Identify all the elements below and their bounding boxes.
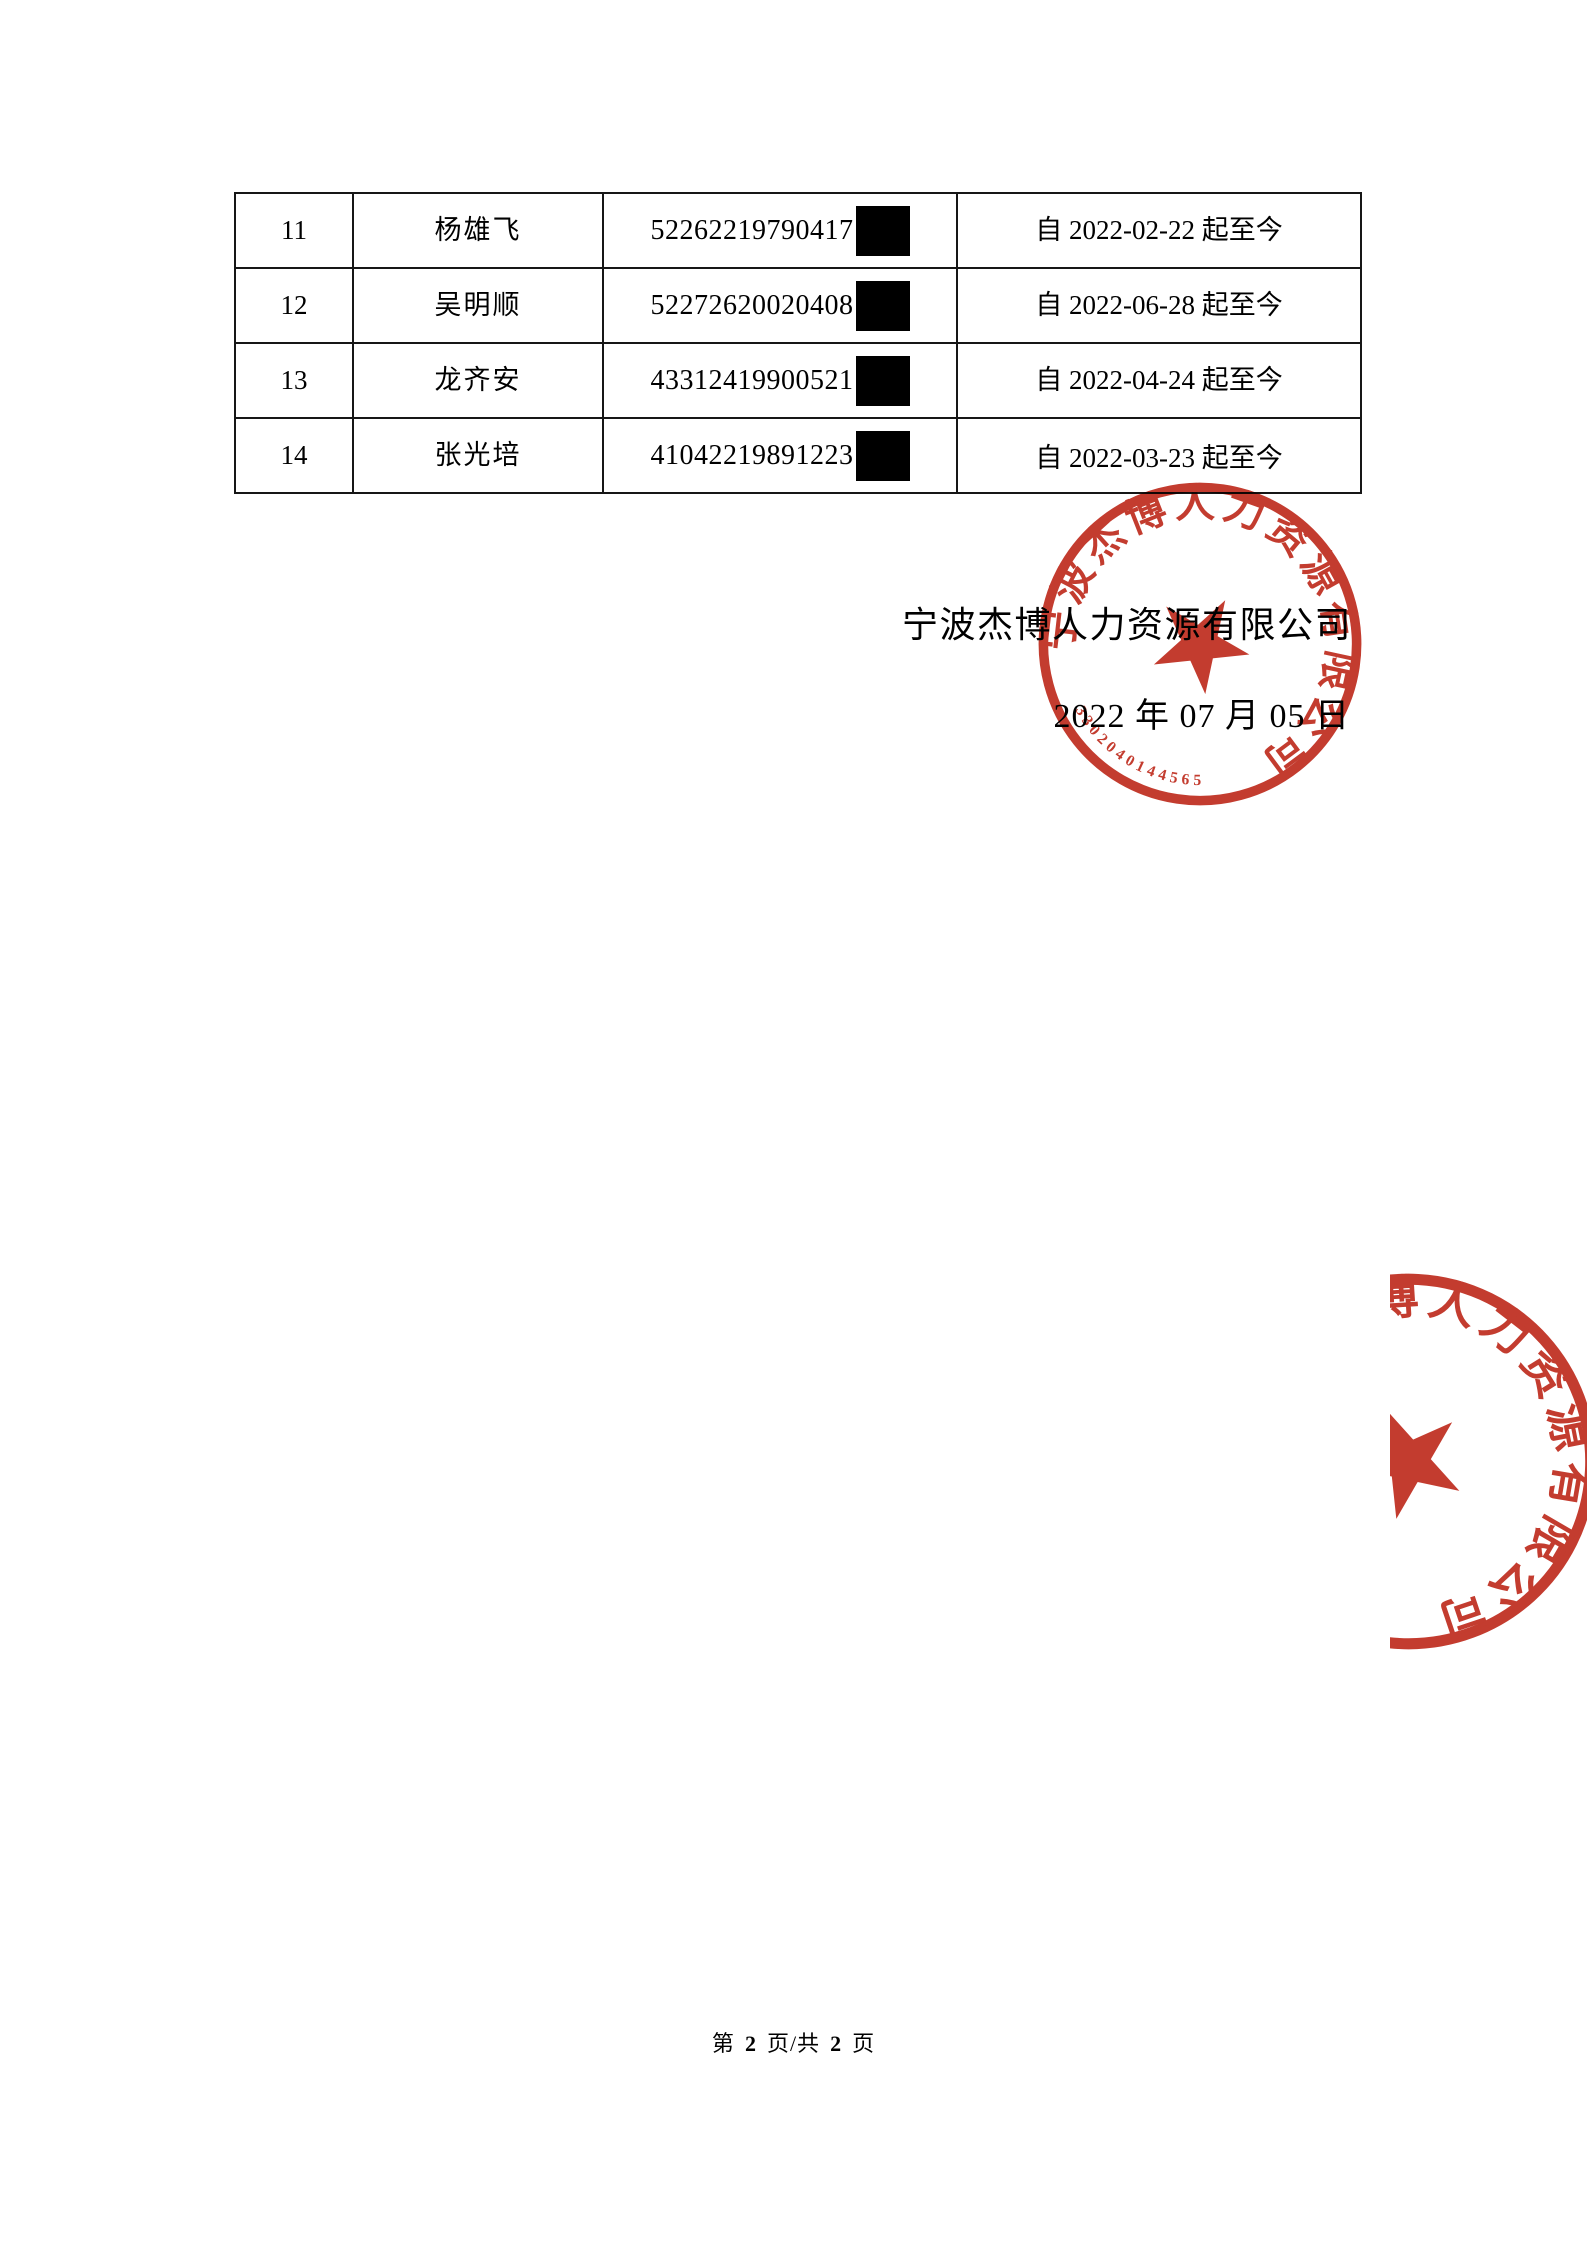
redaction-box xyxy=(856,431,910,481)
seal-star-icon xyxy=(1390,1381,1490,1535)
person-name: 吴明顺 xyxy=(353,268,603,343)
partial-seal-clip: 宁波杰博人力资源有限公司 3302040144565 xyxy=(1390,1259,1587,1665)
redaction-box xyxy=(856,206,910,256)
row-index: 11 xyxy=(235,193,353,268)
footer-prefix: 第 xyxy=(712,2031,735,2056)
id-number: 52262219790417 xyxy=(651,214,854,248)
seal-star-icon xyxy=(1138,576,1267,703)
id-number: 52272620020408 xyxy=(651,289,854,323)
id-cell: 52262219790417 xyxy=(603,193,957,268)
redaction-box xyxy=(856,356,910,406)
id-cell: 43312419900521 xyxy=(603,343,957,418)
person-name: 龙齐安 xyxy=(353,343,603,418)
partial-company-seal: 宁波杰博人力资源有限公司 3302040144565 xyxy=(1390,1259,1587,1664)
footer-separator: 页/共 xyxy=(767,2031,820,2056)
footer-page-number: 2 xyxy=(745,2031,757,2056)
employment-period: 自 2022-04-24 起至今 xyxy=(957,343,1361,418)
redaction-box xyxy=(856,281,910,331)
footer-suffix: 页 xyxy=(852,2031,875,2056)
footer-total-pages: 2 xyxy=(830,2031,842,2056)
id-cell: 41042219891223 xyxy=(603,418,957,493)
id-number: 41042219891223 xyxy=(651,439,854,473)
svg-text:宁波杰博人力资源有限公司: 宁波杰博人力资源有限公司 xyxy=(1390,1259,1587,1665)
company-seal: 宁波杰博人力资源有限公司 3302040144565 xyxy=(1026,470,1374,818)
table-row: 11 杨雄飞 52262219790417 自 2022-02-22 起至今 xyxy=(235,193,1361,268)
person-name: 张光培 xyxy=(353,418,603,493)
document-page: 11 杨雄飞 52262219790417 自 2022-02-22 起至今 1… xyxy=(0,0,1587,2245)
table-row: 12 吴明顺 52272620020408 自 2022-06-28 起至今 xyxy=(235,268,1361,343)
seal-ring-text: 宁波杰博人力资源有限公司 xyxy=(1390,1259,1587,1665)
table-row: 13 龙齐安 43312419900521 自 2022-04-24 起至今 xyxy=(235,343,1361,418)
id-number: 43312419900521 xyxy=(651,364,854,398)
person-name: 杨雄飞 xyxy=(353,193,603,268)
employment-period: 自 2022-06-28 起至今 xyxy=(957,268,1361,343)
row-index: 12 xyxy=(235,268,353,343)
row-index: 13 xyxy=(235,343,353,418)
page-footer: 第2页/共2页 xyxy=(0,2026,1587,2058)
employment-period: 自 2022-02-22 起至今 xyxy=(957,193,1361,268)
seal-ring xyxy=(1390,1259,1587,1665)
row-index: 14 xyxy=(235,418,353,493)
id-cell: 52272620020408 xyxy=(603,268,957,343)
